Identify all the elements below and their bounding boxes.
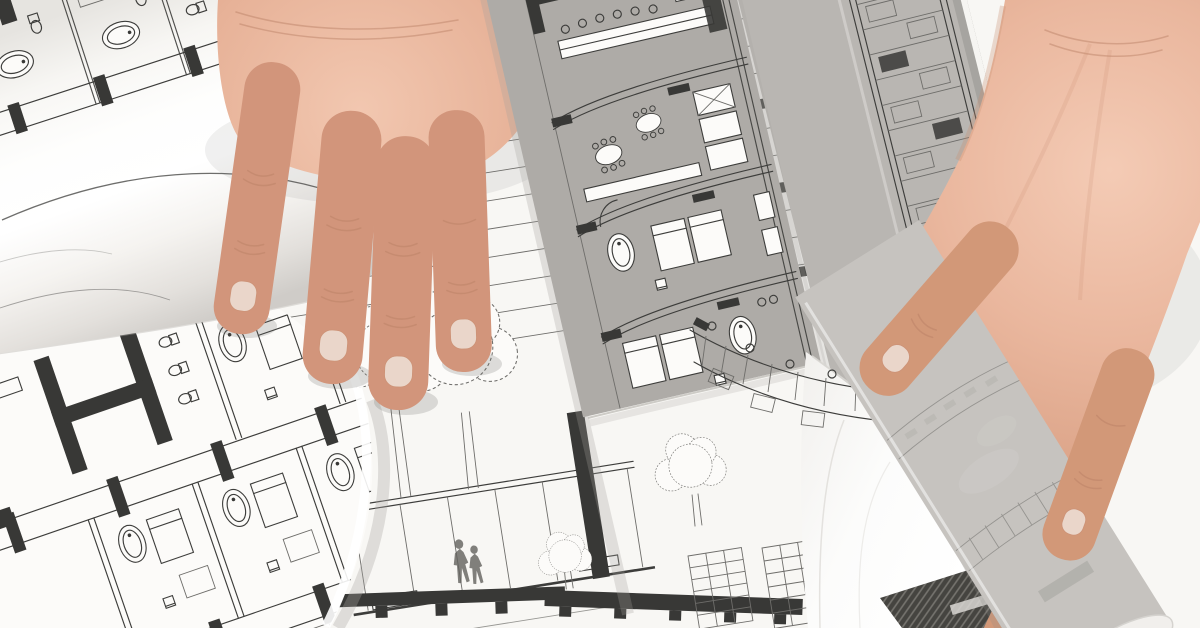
photo-canvas: Top-down photo of two hands working with… [0,0,1200,628]
fingernail [384,356,413,388]
left-finger-little [428,109,493,373]
fingernail [318,329,349,362]
fingernail [450,319,477,350]
photo-blueprints-hands: Top-down photo of two hands working with… [0,0,1200,628]
left-finger-ring [367,135,437,411]
